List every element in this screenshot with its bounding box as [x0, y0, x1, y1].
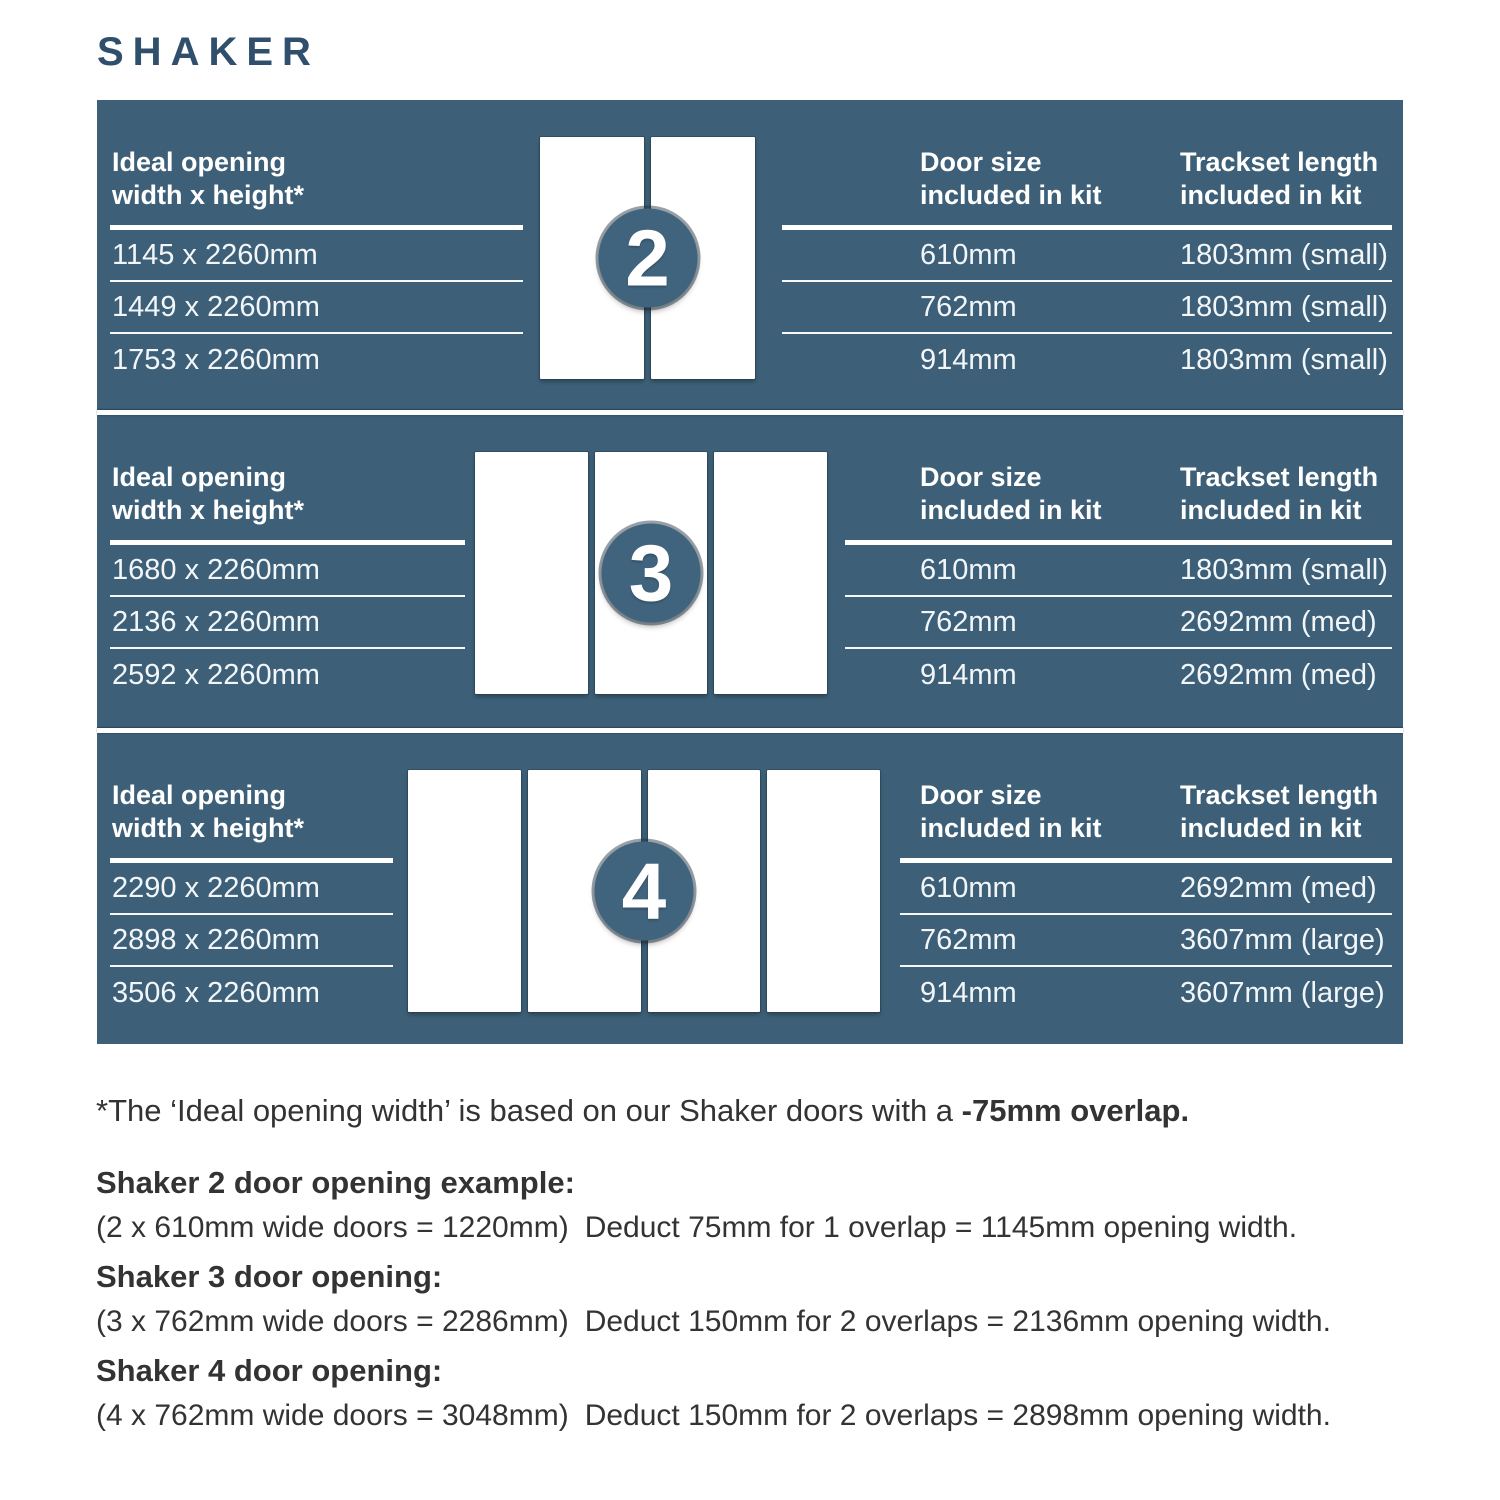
spec-panel: Ideal opening width x height* 1145 x 226…: [97, 100, 1403, 1044]
trackset-header: Trackset length included in kit: [1180, 461, 1392, 527]
example-line: (3 x 762mm wide doors = 2286mm) Deduct 1…: [96, 1299, 1436, 1344]
opening-size-row: 2290 x 2260mm: [110, 863, 393, 915]
opening-size-row: 1680 x 2260mm: [110, 545, 465, 597]
trackset-value: 1803mm (small): [1180, 291, 1392, 324]
trackset-header: Trackset length included in kit: [1180, 146, 1392, 212]
section-divider: [97, 728, 1403, 733]
kit-table-header-row: Door size included in kit Trackset lengt…: [900, 733, 1392, 863]
door-count-badge: 3: [602, 524, 701, 623]
door-size-value: 610mm: [920, 554, 1180, 587]
example-deduction: Deduct 150mm for 2 overlaps = 2898mm ope…: [585, 1393, 1331, 1438]
opening-size-table: Ideal opening width x height* 2290 x 226…: [110, 733, 393, 1044]
trackset-value: 1803mm (small): [1180, 239, 1392, 272]
door-size-value: 610mm: [920, 239, 1180, 272]
spec-section-4-door: Ideal opening width x height* 2290 x 226…: [97, 733, 1403, 1044]
door-size-value: 762mm: [920, 924, 1180, 957]
spec-section-3-door: Ideal opening width x height* 1680 x 226…: [97, 415, 1403, 728]
opening-size-table: Ideal opening width x height* 1145 x 226…: [110, 100, 523, 410]
kit-row: 914mm 1803mm (small): [782, 334, 1392, 386]
section-divider: [97, 410, 1403, 415]
door-panel: [714, 452, 827, 694]
example-calc: (2 x 610mm wide doors = 1220mm): [96, 1205, 569, 1250]
door-size-value: 914mm: [920, 344, 1180, 377]
door-panel: [475, 452, 588, 694]
door-count-badge: 2: [598, 209, 697, 308]
example-heading: Shaker 4 door opening:: [96, 1348, 1436, 1393]
door-size-header: Door size included in kit: [920, 779, 1180, 845]
door-size-value: 762mm: [920, 606, 1180, 639]
door-size-value: 762mm: [920, 291, 1180, 324]
spec-section-2-door: Ideal opening width x height* 1145 x 226…: [97, 100, 1403, 410]
example-calc: (4 x 762mm wide doors = 3048mm): [96, 1393, 569, 1438]
footnote-bold-text: -75mm overlap.: [962, 1093, 1189, 1128]
shaker-sizing-guide: SHAKER Ideal opening width x height* 114…: [0, 0, 1500, 1500]
footnote-text: *The ‘Ideal opening width’ is based on o…: [96, 1093, 962, 1128]
kit-row: 762mm 1803mm (small): [782, 282, 1392, 334]
spacer: [782, 146, 920, 212]
trackset-value: 1803mm (small): [1180, 554, 1392, 587]
door-count-badge: 4: [595, 842, 694, 941]
door-diagram-3: 3: [475, 452, 827, 694]
opening-size-header: Ideal opening width x height*: [110, 100, 523, 230]
example-heading: Shaker 3 door opening:: [96, 1254, 1436, 1299]
kit-row: 914mm 3607mm (large): [900, 967, 1392, 1019]
trackset-value: 2692mm (med): [1180, 872, 1392, 905]
door-size-header: Door size included in kit: [920, 461, 1180, 527]
door-diagram-4: 4: [408, 770, 880, 1012]
notes-block: *The ‘Ideal opening width’ is based on o…: [96, 1092, 1436, 1438]
opening-size-row: 2592 x 2260mm: [110, 649, 465, 701]
example-2-door: Shaker 2 door opening example: (2 x 610m…: [96, 1160, 1436, 1250]
door-size-header: Door size included in kit: [920, 146, 1180, 212]
opening-size-header: Ideal opening width x height*: [110, 415, 465, 545]
page-title: SHAKER: [97, 30, 320, 75]
kit-row: 610mm 2692mm (med): [900, 863, 1392, 915]
kit-table: Door size included in kit Trackset lengt…: [782, 100, 1392, 410]
example-3-door: Shaker 3 door opening: (3 x 762mm wide d…: [96, 1254, 1436, 1344]
spacer: [845, 461, 920, 527]
opening-size-table: Ideal opening width x height* 1680 x 226…: [110, 415, 465, 728]
door-panel: [408, 770, 521, 1012]
kit-table: Door size included in kit Trackset lengt…: [845, 415, 1392, 728]
kit-table-header-row: Door size included in kit Trackset lengt…: [845, 415, 1392, 545]
opening-size-row: 1145 x 2260mm: [110, 230, 523, 282]
opening-size-row: 2136 x 2260mm: [110, 597, 465, 649]
example-deduction: Deduct 150mm for 2 overlaps = 2136mm ope…: [585, 1299, 1331, 1344]
kit-row: 762mm 3607mm (large): [900, 915, 1392, 967]
opening-size-row: 2898 x 2260mm: [110, 915, 393, 967]
example-line: (4 x 762mm wide doors = 3048mm) Deduct 1…: [96, 1393, 1436, 1438]
example-calc: (3 x 762mm wide doors = 2286mm): [96, 1299, 569, 1344]
opening-size-row: 1753 x 2260mm: [110, 334, 523, 386]
kit-table-header-row: Door size included in kit Trackset lengt…: [782, 100, 1392, 230]
door-diagram-2: 2: [540, 137, 755, 379]
example-deduction: Deduct 75mm for 1 overlap = 1145mm openi…: [585, 1205, 1297, 1250]
trackset-header: Trackset length included in kit: [1180, 779, 1392, 845]
opening-size-row: 3506 x 2260mm: [110, 967, 393, 1019]
kit-row: 914mm 2692mm (med): [845, 649, 1392, 701]
trackset-value: 1803mm (small): [1180, 344, 1392, 377]
footnote: *The ‘Ideal opening width’ is based on o…: [96, 1092, 1436, 1130]
opening-size-row: 1449 x 2260mm: [110, 282, 523, 334]
trackset-value: 3607mm (large): [1180, 977, 1392, 1010]
spacer: [900, 779, 920, 845]
example-4-door: Shaker 4 door opening: (4 x 762mm wide d…: [96, 1348, 1436, 1438]
kit-row: 762mm 2692mm (med): [845, 597, 1392, 649]
door-panel: [767, 770, 880, 1012]
door-size-value: 914mm: [920, 977, 1180, 1010]
door-size-value: 610mm: [920, 872, 1180, 905]
trackset-value: 2692mm (med): [1180, 659, 1392, 692]
kit-table: Door size included in kit Trackset lengt…: [900, 733, 1392, 1044]
example-line: (2 x 610mm wide doors = 1220mm) Deduct 7…: [96, 1205, 1436, 1250]
kit-row: 610mm 1803mm (small): [782, 230, 1392, 282]
trackset-value: 3607mm (large): [1180, 924, 1392, 957]
kit-row: 610mm 1803mm (small): [845, 545, 1392, 597]
trackset-value: 2692mm (med): [1180, 606, 1392, 639]
door-size-value: 914mm: [920, 659, 1180, 692]
example-heading: Shaker 2 door opening example:: [96, 1160, 1436, 1205]
opening-size-header: Ideal opening width x height*: [110, 733, 393, 863]
